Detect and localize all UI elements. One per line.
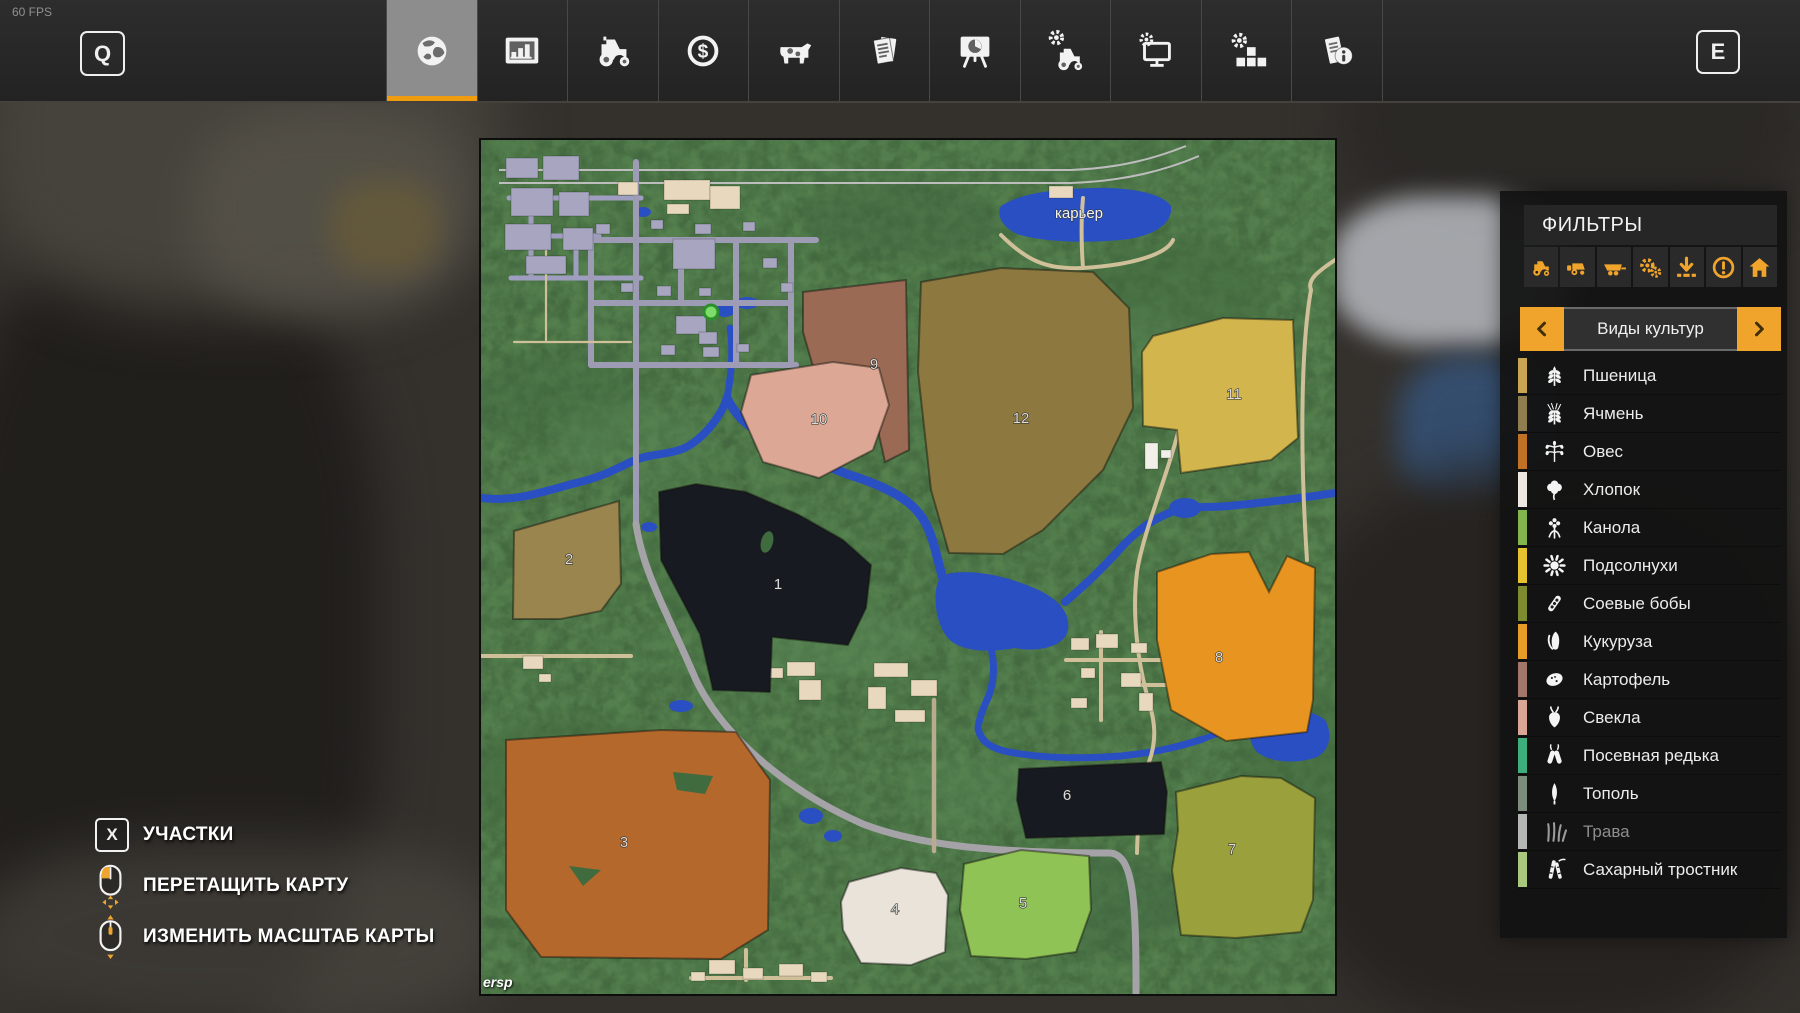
tab-monitor-gear[interactable] xyxy=(1110,0,1201,101)
beet-icon xyxy=(1533,705,1575,730)
crop-color-swatch xyxy=(1518,396,1527,431)
field-number-7: 7 xyxy=(1228,841,1236,858)
next-menu-key-hint[interactable]: E xyxy=(1696,30,1740,74)
barley-icon xyxy=(1533,401,1575,426)
crop-filter-row[interactable]: Посевная редька xyxy=(1518,737,1781,775)
crop-color-swatch xyxy=(1518,624,1527,659)
filter-download-button[interactable] xyxy=(1670,247,1704,287)
crop-color-swatch xyxy=(1518,548,1527,583)
menu-tab-strip: $ xyxy=(386,0,1383,101)
field-3 xyxy=(506,730,770,959)
crop-filter-row[interactable]: Соевые бобы xyxy=(1518,585,1781,623)
svg-text:$: $ xyxy=(698,41,709,62)
dollar-icon: $ xyxy=(680,28,726,74)
filter-icon-row xyxy=(1524,247,1777,287)
gears-icon xyxy=(1638,255,1663,280)
crop-label: Канола xyxy=(1583,518,1640,538)
key-hint-x: X xyxy=(95,818,129,852)
tab-dollar[interactable]: $ xyxy=(658,0,749,101)
crop-color-swatch xyxy=(1518,510,1527,545)
crop-color-swatch xyxy=(1518,814,1527,849)
field-number-9: 9 xyxy=(870,356,878,373)
filter-home-button[interactable] xyxy=(1743,247,1777,287)
crop-label: Кукуруза xyxy=(1583,632,1652,652)
crop-color-swatch xyxy=(1518,738,1527,773)
mouse-scroll-icon xyxy=(95,914,125,961)
legend-label: УЧАСТКИ xyxy=(143,824,234,846)
tab-documents[interactable] xyxy=(839,0,930,101)
filter-harvester-button[interactable] xyxy=(1560,247,1594,287)
legend-label: ИЗМЕНИТЬ МАСШТАБ КАРТЫ xyxy=(143,926,434,948)
legend-row: XУЧАСТКИ xyxy=(95,815,434,855)
tab-blocks-gear[interactable] xyxy=(1201,0,1292,101)
mouse-drag-icon xyxy=(95,863,125,910)
selector-next-button[interactable] xyxy=(1737,307,1781,351)
quarry-label: карьер xyxy=(1055,205,1103,222)
fps-counter: 60 FPS xyxy=(12,5,52,19)
soybean-icon xyxy=(1533,591,1575,616)
crop-color-swatch xyxy=(1518,472,1527,507)
documents-icon xyxy=(862,28,908,74)
crop-label: Посевная редька xyxy=(1583,746,1719,766)
legend-row: ИЗМЕНИТЬ МАСШТАБ КАРТЫ xyxy=(95,917,434,957)
world-map[interactable]: 123456789101112 карьер ersp xyxy=(479,138,1337,996)
field-number-3: 3 xyxy=(620,834,628,851)
corn-icon xyxy=(1533,629,1575,654)
crop-filter-row[interactable]: Ячмень xyxy=(1518,395,1781,433)
filter-tractor-button[interactable] xyxy=(1524,247,1558,287)
home-icon xyxy=(1747,255,1772,280)
field-7 xyxy=(1172,776,1315,938)
cow-icon xyxy=(771,28,817,74)
crop-filter-row[interactable]: Тополь xyxy=(1518,775,1781,813)
tab-presentation[interactable] xyxy=(929,0,1020,101)
crop-color-swatch xyxy=(1518,852,1527,887)
player-home-marker xyxy=(704,305,718,319)
tab-tractor[interactable] xyxy=(567,0,658,101)
tractor-icon xyxy=(590,28,636,74)
filters-panel: ФИЛЬТРЫ Виды культур ПшеницаЯчменьОвесХл… xyxy=(1500,191,1787,938)
crop-filter-row[interactable]: Подсолнухи xyxy=(1518,547,1781,585)
crop-label: Пшеница xyxy=(1583,366,1656,386)
selector-prev-button[interactable] xyxy=(1520,307,1564,351)
field-number-1: 1 xyxy=(774,576,782,593)
monitor-gear-icon xyxy=(1133,28,1179,74)
legend-row: ПЕРЕТАЩИТЬ КАРТУ xyxy=(95,866,434,906)
legend-label: ПЕРЕТАЩИТЬ КАРТУ xyxy=(143,875,348,897)
field-number-2: 2 xyxy=(565,551,573,568)
crop-color-swatch xyxy=(1518,586,1527,621)
tab-info-document[interactable] xyxy=(1291,0,1383,101)
crop-filter-row[interactable]: Трава xyxy=(1518,813,1781,851)
canola-icon xyxy=(1533,515,1575,540)
map-canvas: 123456789101112 карьер xyxy=(481,140,1335,994)
sunflower-icon xyxy=(1533,553,1575,578)
crop-label: Ячмень xyxy=(1583,404,1644,424)
crop-label: Подсолнухи xyxy=(1583,556,1678,576)
field-number-11: 11 xyxy=(1226,386,1242,403)
info-document-icon xyxy=(1314,28,1360,74)
poplar-icon xyxy=(1533,781,1575,806)
field-number-8: 8 xyxy=(1215,649,1223,666)
cotton-icon xyxy=(1533,477,1575,502)
field-number-10: 10 xyxy=(811,411,828,428)
filter-category-selector: Виды культур xyxy=(1520,307,1781,351)
wheat-icon xyxy=(1533,363,1575,388)
download-icon xyxy=(1674,255,1699,280)
crop-filter-row[interactable]: Сахарный тростник xyxy=(1518,851,1781,889)
crop-color-swatch xyxy=(1518,700,1527,735)
crop-color-swatch xyxy=(1518,434,1527,469)
radish-icon xyxy=(1533,743,1575,768)
field-8 xyxy=(1157,552,1315,741)
tab-tractor-gear[interactable] xyxy=(1020,0,1111,101)
bar-chart-icon xyxy=(499,28,545,74)
crop-filter-row[interactable]: Канола xyxy=(1518,509,1781,547)
tab-cow[interactable] xyxy=(748,0,839,101)
filter-gears-button[interactable] xyxy=(1633,247,1667,287)
input-legend: XУЧАСТКИПЕРЕТАЩИТЬ КАРТУИЗМЕНИТЬ МАСШТАБ… xyxy=(95,815,434,968)
crop-filter-row[interactable]: Кукуруза xyxy=(1518,623,1781,661)
crop-label: Хлопок xyxy=(1583,480,1640,500)
crop-color-swatch xyxy=(1518,776,1527,811)
field-number-12: 12 xyxy=(1013,410,1030,427)
top-menu-bar: 60 FPS Q E $ xyxy=(0,0,1800,103)
crop-label: Овес xyxy=(1583,442,1623,462)
crop-filter-row[interactable]: Пшеница xyxy=(1518,357,1781,395)
crop-color-swatch xyxy=(1518,358,1527,393)
filters-panel-title: ФИЛЬТРЫ xyxy=(1524,205,1777,245)
tractor-gear-icon xyxy=(1043,28,1089,74)
crop-filter-row[interactable]: Овес xyxy=(1518,433,1781,471)
crop-filter-row[interactable]: Хлопок xyxy=(1518,471,1781,509)
sugarcane-icon xyxy=(1533,857,1575,882)
presentation-icon xyxy=(952,28,998,74)
tractor-icon xyxy=(1529,255,1554,280)
crop-label: Свекла xyxy=(1583,708,1641,728)
background-blur xyxy=(330,180,440,275)
globe-icon xyxy=(409,28,455,74)
trailer-icon xyxy=(1602,255,1627,280)
crop-label: Сахарный тростник xyxy=(1583,860,1737,880)
potato-icon xyxy=(1533,667,1575,692)
field-number-5: 5 xyxy=(1019,895,1027,912)
crop-label: Трава xyxy=(1583,822,1630,842)
crop-label: Соевые бобы xyxy=(1583,594,1691,614)
tab-bar-chart[interactable] xyxy=(477,0,568,101)
grass-icon xyxy=(1533,819,1575,844)
chevron-left-icon xyxy=(1532,319,1552,339)
chevron-right-icon xyxy=(1749,319,1769,339)
field-number-6: 6 xyxy=(1063,787,1071,804)
crop-label: Тополь xyxy=(1583,784,1639,804)
crop-label: Картофель xyxy=(1583,670,1670,690)
game-screen: 60 FPS Q E $ xyxy=(0,0,1800,1013)
field-6 xyxy=(1017,762,1167,838)
tab-globe[interactable] xyxy=(386,0,477,101)
selector-label: Виды культур xyxy=(1564,307,1737,351)
crop-filter-row[interactable]: Свекла xyxy=(1518,699,1781,737)
oats-icon xyxy=(1533,439,1575,464)
filter-trailer-button[interactable] xyxy=(1597,247,1631,287)
harvester-icon xyxy=(1565,255,1590,280)
crop-filter-list: ПшеницаЯчменьОвесХлопокКанолаПодсолнухиС… xyxy=(1500,357,1787,889)
crop-filter-row[interactable]: Картофель xyxy=(1518,661,1781,699)
map-watermark: ersp xyxy=(483,974,513,990)
prev-menu-key-hint[interactable]: Q xyxy=(80,31,125,76)
filter-attention-button[interactable] xyxy=(1706,247,1740,287)
field-number-4: 4 xyxy=(891,901,899,918)
crop-color-swatch xyxy=(1518,662,1527,697)
blocks-gear-icon xyxy=(1224,28,1270,74)
attention-icon xyxy=(1711,255,1736,280)
